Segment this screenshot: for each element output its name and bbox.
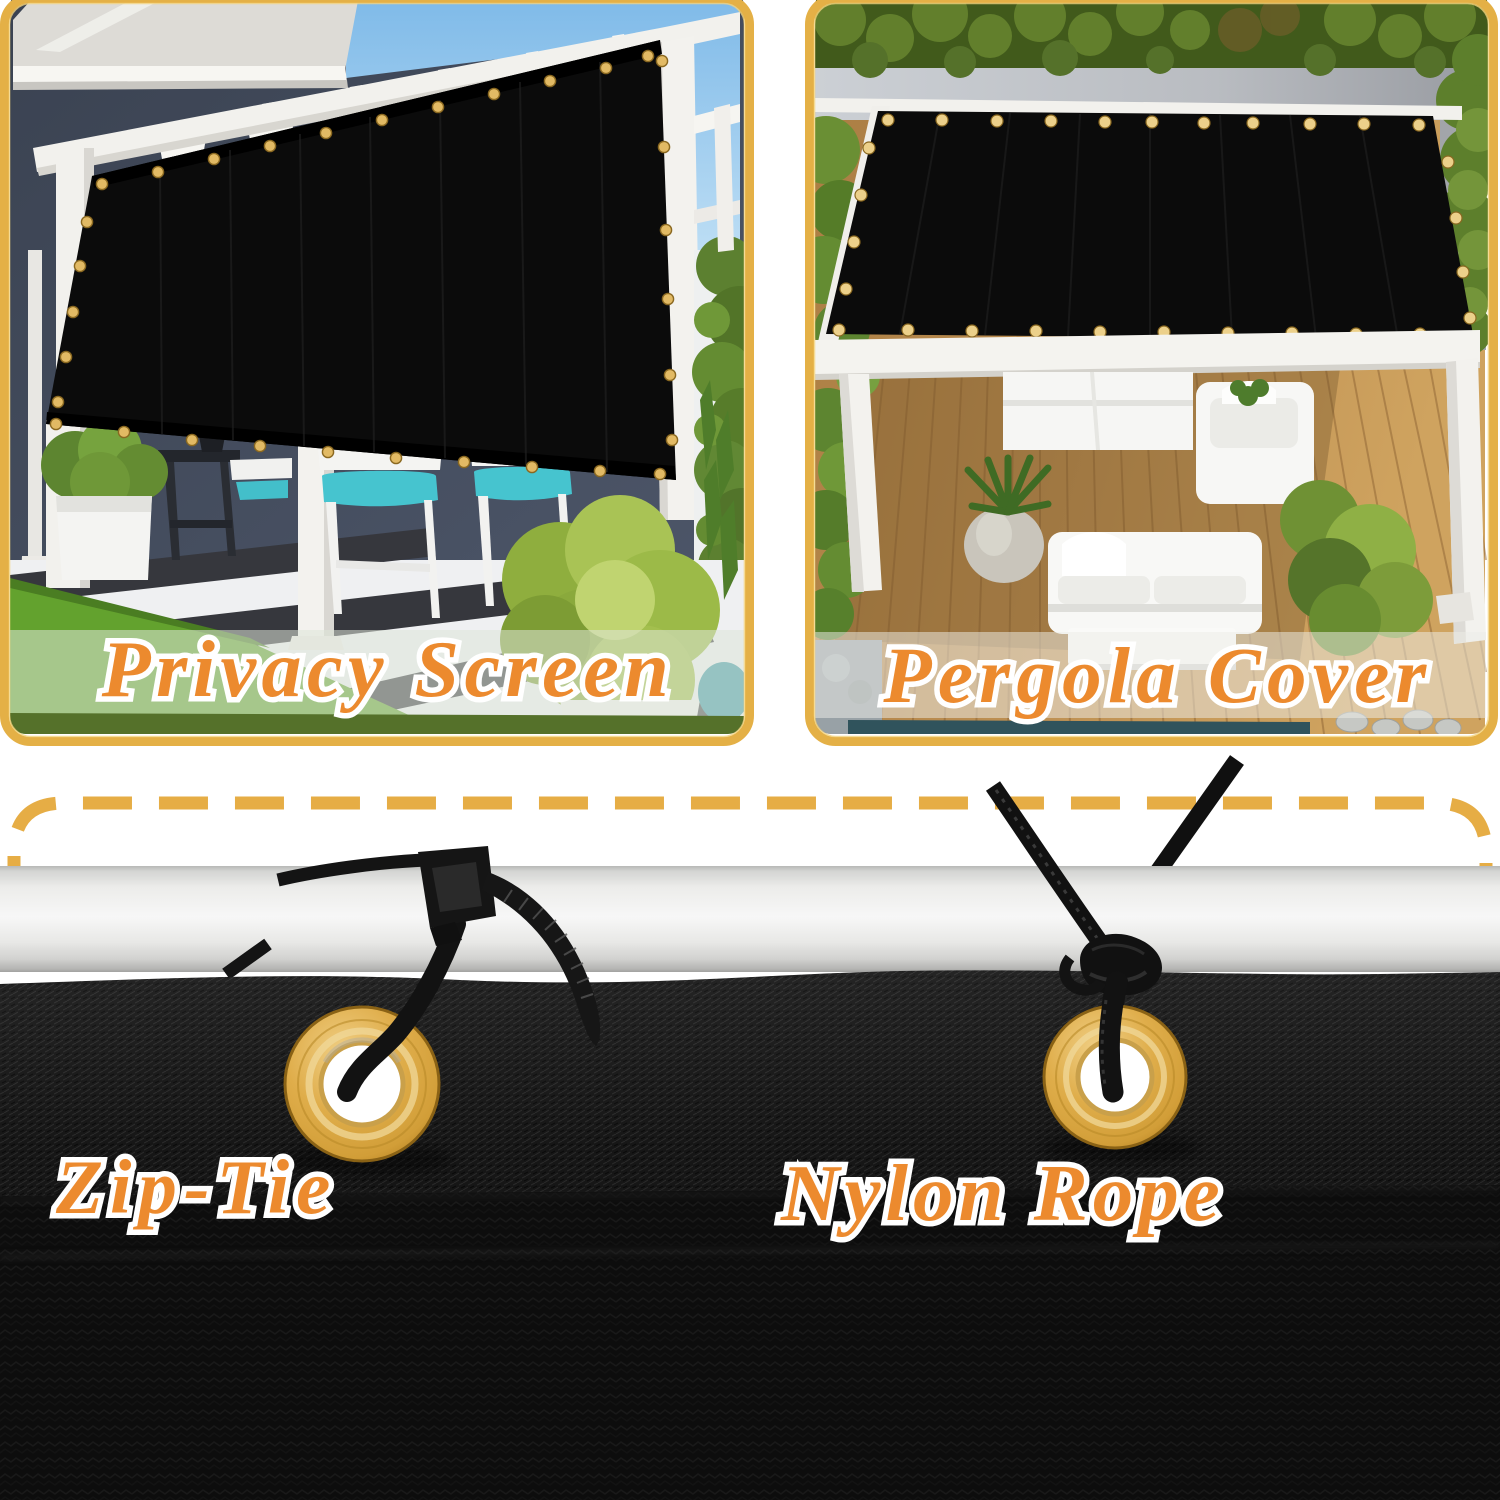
svg-text:Nylon Rope: Nylon Rope bbox=[780, 1148, 1225, 1238]
svg-text:Zip-Tie: Zip-Tie bbox=[55, 1144, 337, 1230]
svg-text:Privacy Screen: Privacy Screen bbox=[101, 626, 674, 714]
svg-text:Pergola Cover: Pergola Cover bbox=[882, 633, 1432, 720]
